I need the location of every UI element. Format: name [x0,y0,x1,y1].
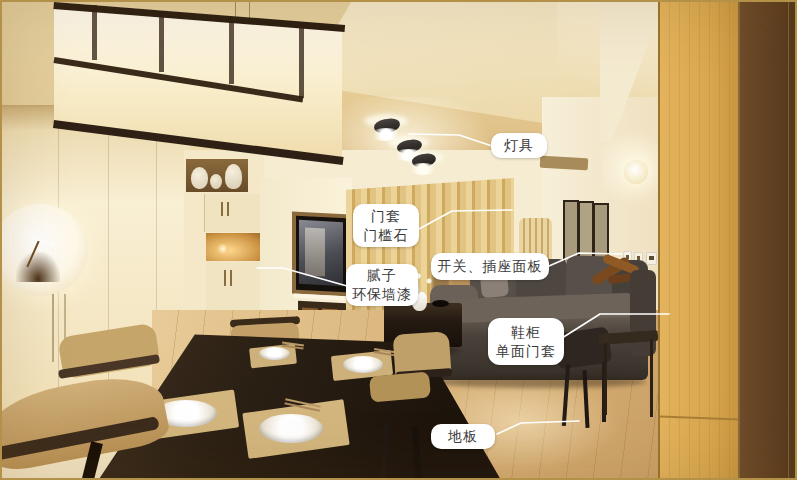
orchid-flowers [24,238,58,248]
tv-screen-image [305,227,325,276]
label-wood-floor-text: 地板 [448,427,478,446]
cabinet-handle [227,202,229,216]
pendant-lamp-slat [92,5,97,60]
niche-light-object [217,244,229,254]
wall-sconce [624,160,648,184]
cabinet-handle [230,270,232,286]
door-panel-grain [660,2,740,480]
air-vent [540,156,589,170]
label-door-frame-threshold: 门套 门槛石 [353,204,419,247]
pendant-lamp-slat [299,24,304,98]
label-switch-socket-text: 开关、插座面板 [438,257,543,276]
label-shoe-cabinet-text-1: 鞋柜 [511,323,541,342]
label-wood-floor: 地板 [431,424,495,449]
label-lighting: 灯具 [491,133,547,158]
pendant-lamp-slat [159,12,164,72]
shelf-vase [191,167,208,189]
side-table-leg [650,339,653,417]
dark-panel-seam [788,2,789,480]
label-putty-text-2: 环保墙漆 [352,285,412,304]
pendant-lamp [54,2,342,170]
lit-niche [206,233,262,261]
label-shoe-cabinet-text-2: 单面门套 [496,342,556,361]
cabinet-handle [221,202,223,216]
label-door-frame-text-2: 门槛石 [364,226,409,245]
sofa-floor-shadow [434,376,646,388]
label-switch-socket-panel: 开关、插座面板 [431,253,549,280]
label-shoe-cabinet-door-frame: 鞋柜 单面门套 [488,318,564,365]
plate [259,347,290,360]
side-table-leg [604,343,607,415]
table-bowl [432,300,449,307]
floor-lamp-pole [52,294,54,362]
spotlight-glow [408,163,438,175]
cabinet-upper-doors [204,194,265,232]
label-lighting-text: 灯具 [504,136,534,155]
label-putty-eco-wall-paint: 腻子 环保墙漆 [346,264,418,306]
label-putty-text-1: 腻子 [367,266,397,285]
dining-chair-right-seat [369,371,431,402]
plate [343,356,383,373]
shelf-vase [210,174,222,189]
label-door-frame-text-1: 门套 [371,207,401,226]
plate [259,414,323,443]
pendant-lamp-slat [229,18,234,84]
orchid-branch [16,252,60,282]
annotated-room-photo: 灯具 门套 门槛石 开关、插座面板 腻子 环保墙漆 鞋柜 单面门套 地板 [0,0,797,480]
socket-dot [649,256,654,260]
cabinet-handle [224,270,226,286]
